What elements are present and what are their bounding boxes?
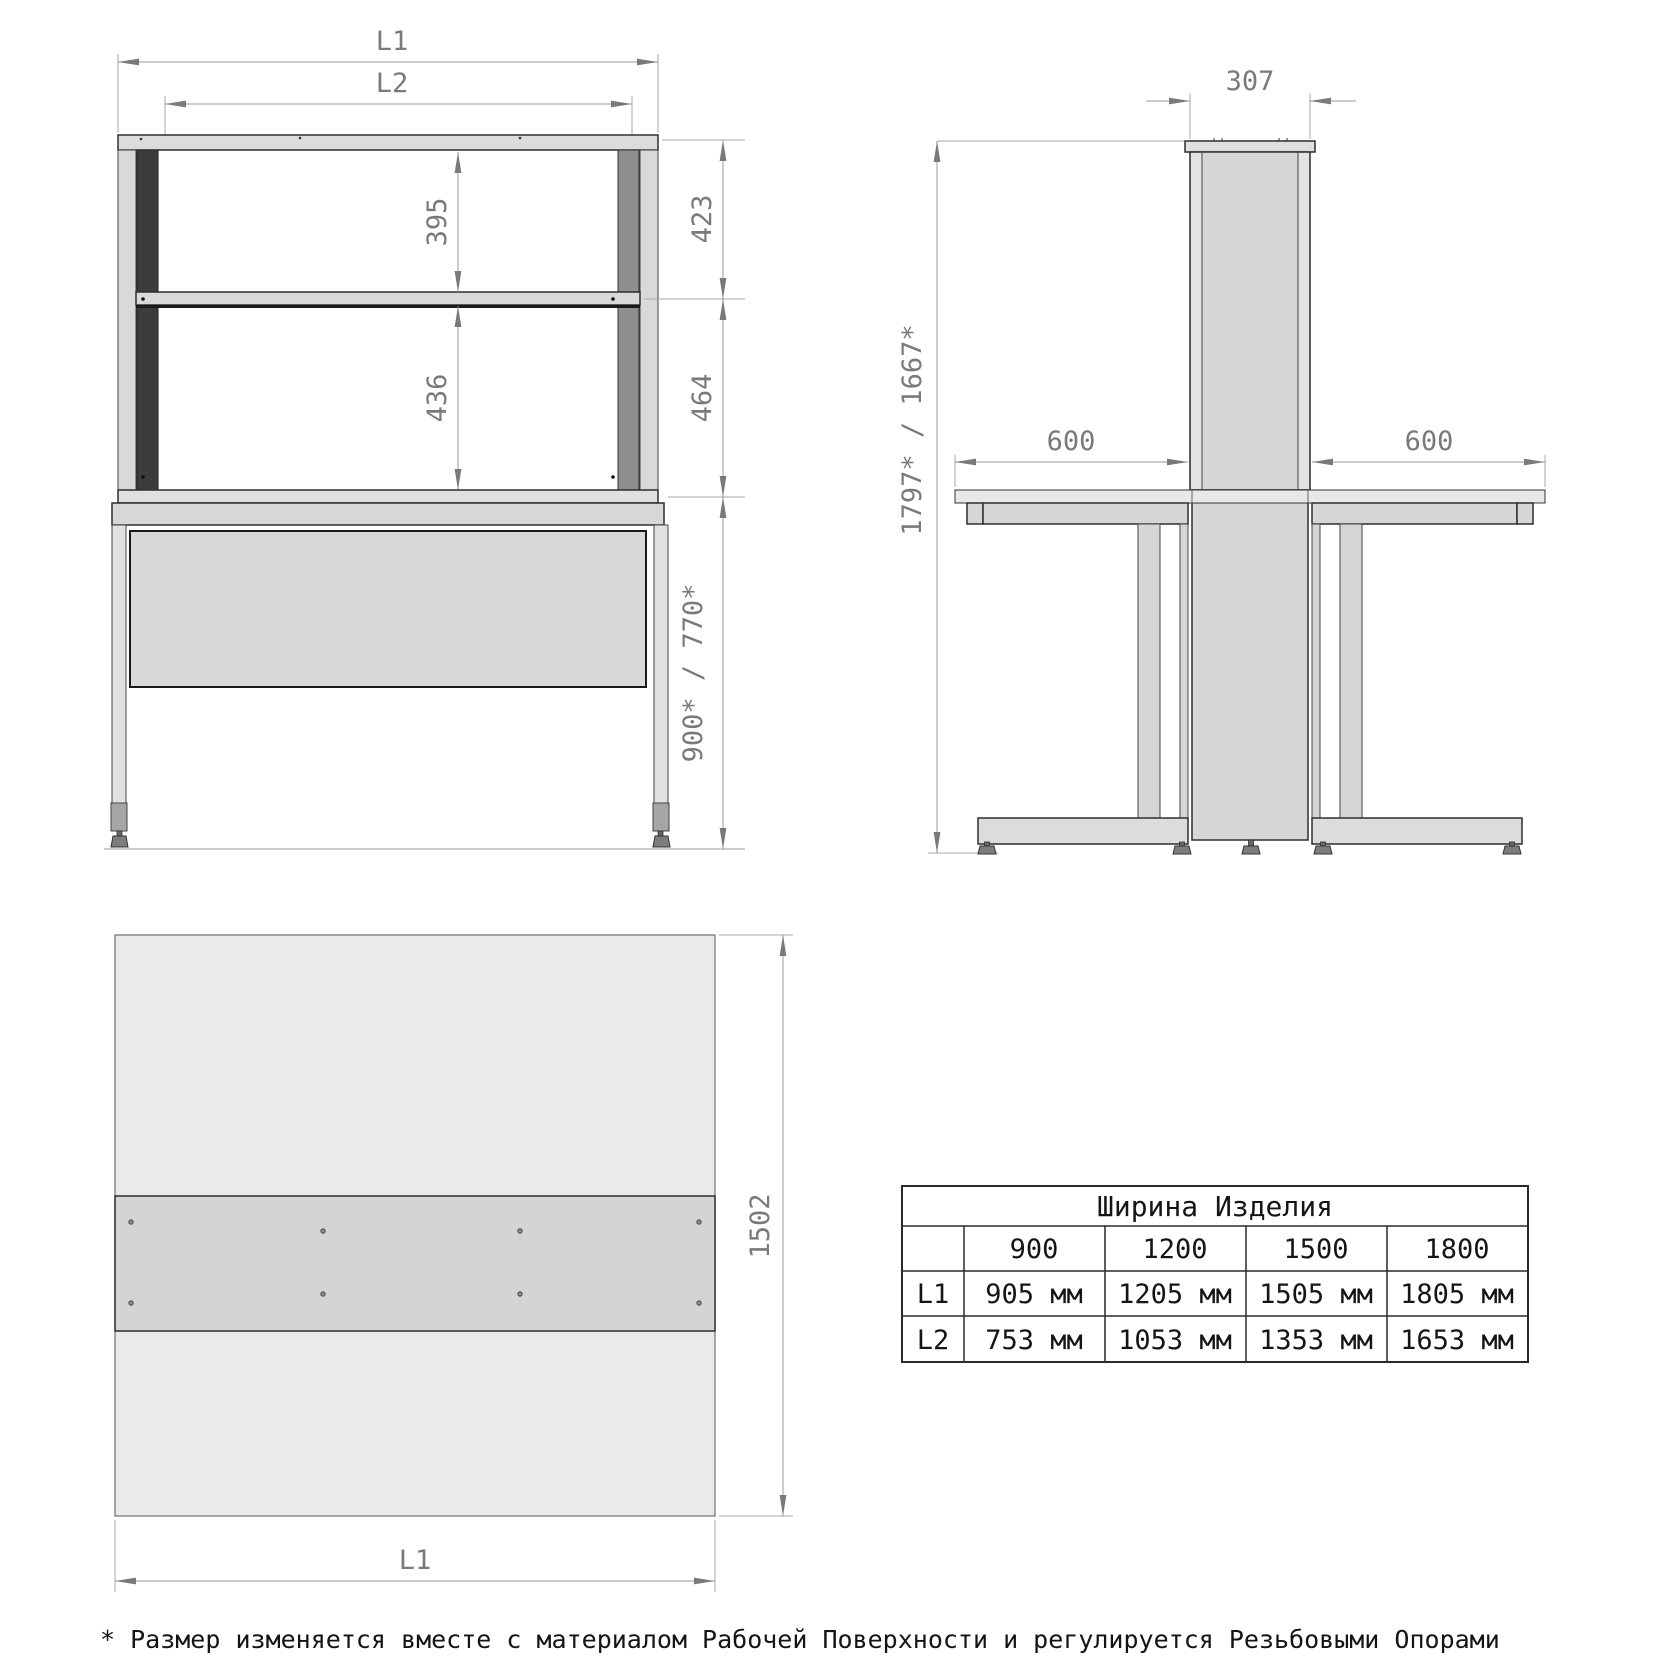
shelf-unit-base (118, 490, 658, 503)
beam-plan-band (115, 1196, 715, 1331)
table-col-header: 900 (1010, 1234, 1059, 1265)
column-upper (1190, 152, 1310, 490)
right-leg-outer (1340, 524, 1362, 818)
table-cell: 1805 мм (1400, 1279, 1514, 1310)
dim-label-600-right: 600 (1405, 426, 1454, 457)
dim-label-1502: 1502 (745, 1193, 776, 1258)
top-dim-width: L1 (115, 1520, 715, 1592)
top-view: 1502 L1 (115, 935, 793, 1592)
dim-label-900-770: 900* / 770* (678, 584, 709, 763)
dim-label-l1-bottom: L1 (399, 1545, 432, 1576)
table-title: Ширина Изделия (1097, 1190, 1333, 1223)
right-post (618, 150, 639, 490)
middle-shelf (136, 292, 640, 305)
side-dim-left-span: 600 (955, 426, 1188, 487)
side-dim-depth: 307 (1146, 66, 1356, 139)
dim-label-600-left: 600 (1047, 426, 1096, 457)
column-top-cap (1185, 141, 1315, 152)
table-row-label: L1 (917, 1279, 950, 1310)
left-dark-post (137, 150, 158, 490)
right-frame-column (640, 150, 658, 490)
worktop-front (112, 503, 664, 525)
left-leg-outer (1138, 524, 1160, 818)
front-left-leg (112, 525, 126, 803)
side-dim-right-span: 600 (1312, 426, 1545, 487)
table-cell: 905 мм (985, 1279, 1083, 1310)
front-left-leg-lower (111, 803, 127, 831)
table-cell: 753 мм (985, 1325, 1083, 1356)
table-cell: 1505 мм (1259, 1279, 1373, 1310)
dim-label-464: 464 (687, 374, 718, 423)
left-frame-column (118, 150, 136, 490)
left-rail-endcap (967, 503, 983, 524)
dim-label-395: 395 (422, 198, 453, 247)
table-cell: 1053 мм (1118, 1325, 1232, 1356)
front-left-foot (111, 831, 128, 847)
table-row-label: L2 (917, 1325, 950, 1356)
worktop-side (955, 490, 1545, 503)
dimension-table: Ширина Изделия 900 1200 1500 1800 L1 905… (902, 1186, 1528, 1362)
dim-label-307: 307 (1226, 66, 1275, 97)
front-right-foot (653, 831, 670, 847)
front-panel (130, 531, 646, 687)
table-col-header: 1200 (1142, 1234, 1207, 1265)
dim-label-436: 436 (422, 374, 453, 423)
technical-drawing-page: L1 L2 395 436 (0, 0, 1680, 1680)
dim-label-l2: L2 (376, 68, 409, 99)
table-cell: 1205 мм (1118, 1279, 1232, 1310)
right-rail (1312, 503, 1517, 524)
right-rail-endcap (1517, 503, 1533, 524)
left-foot-beam (978, 818, 1188, 844)
front-dim-shelf-upper: 395 (422, 152, 458, 292)
side-view: 307 1797* / 1667* (897, 66, 1545, 854)
left-rail (983, 503, 1188, 524)
left-leg-inner (1180, 524, 1188, 818)
table-cell: 1353 мм (1259, 1325, 1373, 1356)
dim-label-1797-1667: 1797* / 1667* (897, 324, 928, 535)
front-dim-shelf-lower: 436 (422, 306, 458, 490)
front-dim-l2: L2 (165, 68, 632, 140)
dim-label-l1: L1 (376, 26, 409, 57)
top-dim-depth: 1502 (719, 935, 793, 1516)
shelf-top-cap (118, 135, 658, 150)
column-lower (1192, 490, 1308, 840)
table-cell: 1653 мм (1400, 1325, 1514, 1356)
dim-label-423: 423 (687, 195, 718, 244)
table-col-header: 1500 (1283, 1234, 1348, 1265)
front-right-leg-lower (653, 803, 669, 831)
table-col-header: 1800 (1424, 1234, 1489, 1265)
footnote: * Размер изменяется вместе с материалом … (100, 1625, 1500, 1654)
right-leg-inner (1312, 524, 1320, 818)
front-view: L1 L2 395 436 (104, 26, 745, 849)
front-right-leg (654, 525, 668, 803)
laboratory-bench-drawing: L1 L2 395 436 (0, 0, 1680, 1680)
right-foot-beam (1312, 818, 1522, 844)
